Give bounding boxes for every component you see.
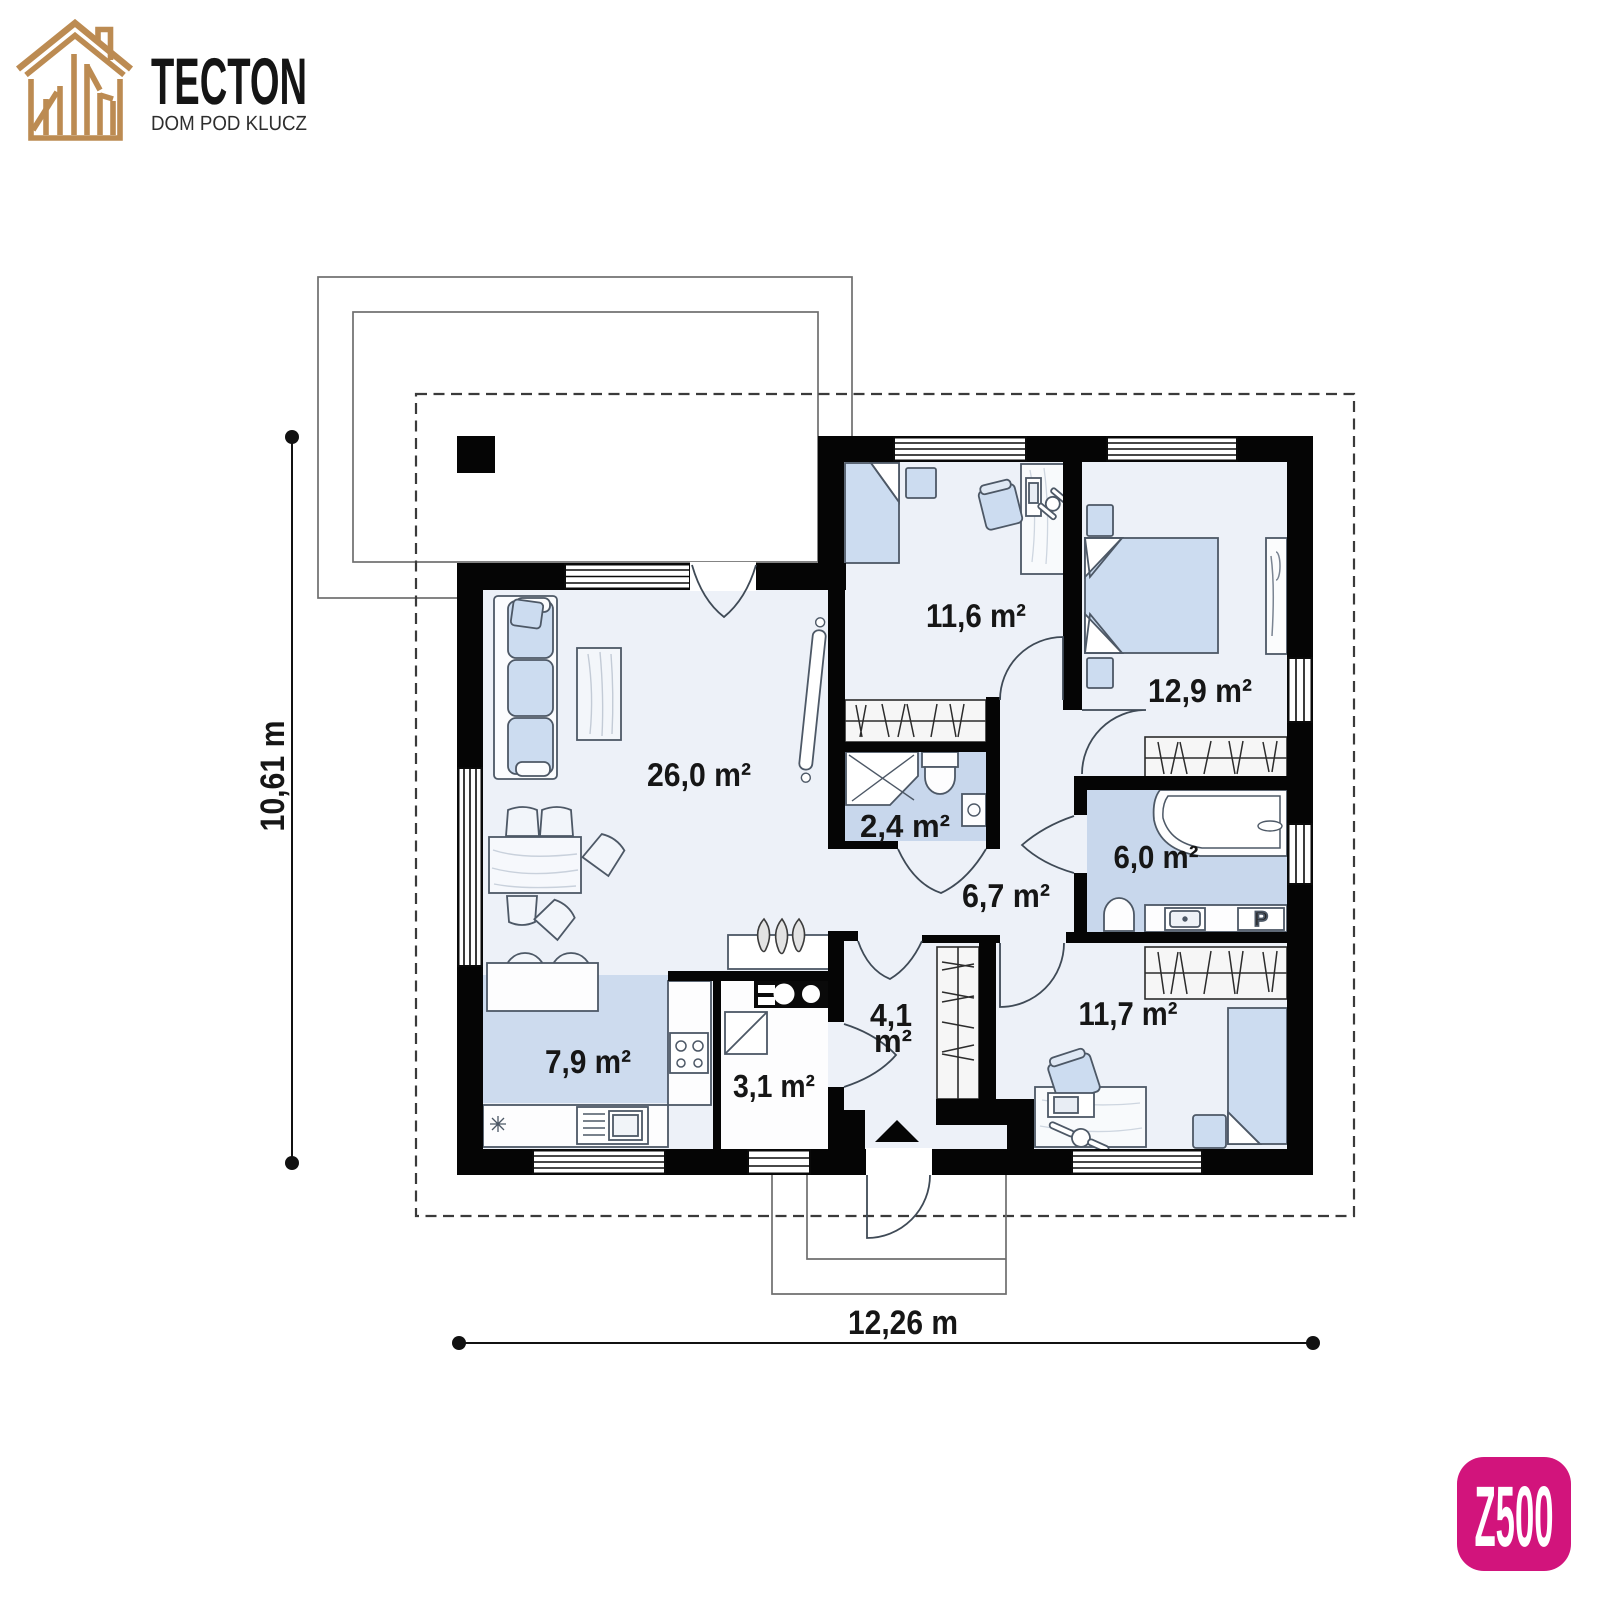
svg-text:TECTON: TECTON [151,44,307,118]
svg-text:P: P [1254,908,1268,931]
svg-text:2,4 m²: 2,4 m² [860,808,950,844]
svg-text:m²: m² [874,1023,912,1059]
svg-text:3,1 m²: 3,1 m² [733,1068,815,1104]
svg-text:12,26 m: 12,26 m [848,1304,958,1342]
svg-text:10,61 m: 10,61 m [254,721,292,832]
svg-text:6,7 m²: 6,7 m² [962,877,1050,914]
svg-text:6,0 m²: 6,0 m² [1114,839,1199,875]
svg-text:11,6 m²: 11,6 m² [926,597,1026,634]
svg-text:26,0 m²: 26,0 m² [647,756,751,793]
svg-text:Z500: Z500 [1475,1469,1554,1565]
svg-text:7,9 m²: 7,9 m² [545,1043,631,1080]
svg-text:11,7 m²: 11,7 m² [1079,995,1178,1032]
svg-text:12,9 m²: 12,9 m² [1148,672,1252,709]
svg-text:DOM POD KLUCZ: DOM POD KLUCZ [151,112,307,135]
